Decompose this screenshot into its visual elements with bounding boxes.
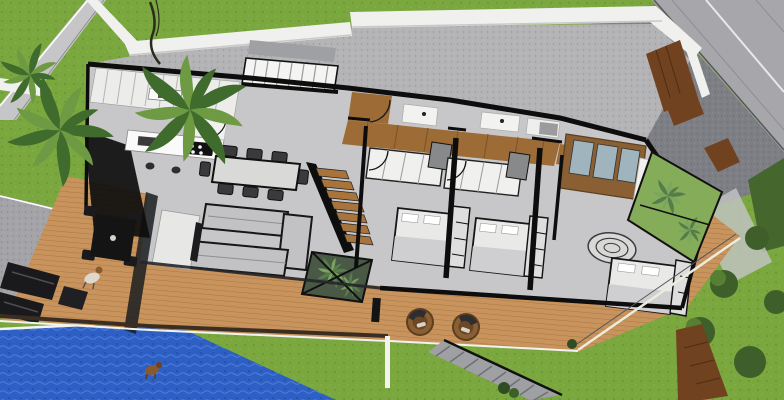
- pillow: [502, 225, 519, 235]
- deck-pillar: [371, 298, 381, 322]
- shrub: [567, 339, 577, 349]
- pillow: [618, 263, 636, 273]
- outdoor-chair: [83, 205, 97, 217]
- shrub: [498, 382, 510, 394]
- pillow: [402, 213, 419, 223]
- bar-stool: [146, 163, 155, 170]
- dining-chair: [199, 162, 210, 177]
- dining-chair: [218, 183, 234, 195]
- pillow: [642, 266, 660, 276]
- dining-chair: [243, 186, 259, 198]
- tree: [734, 346, 766, 378]
- house-render: [0, 0, 784, 400]
- tree: [745, 226, 769, 250]
- closet-block: [506, 152, 530, 180]
- pillow: [424, 215, 441, 225]
- shrub: [509, 388, 519, 398]
- dining-chair: [247, 148, 263, 160]
- pillow: [480, 223, 497, 233]
- courtyard-garden-center: [302, 252, 372, 303]
- render-viewport: [0, 0, 784, 400]
- vanity: [402, 104, 438, 126]
- dining-chair: [268, 189, 284, 201]
- railing-post: [385, 336, 390, 388]
- bar-stool: [172, 167, 181, 174]
